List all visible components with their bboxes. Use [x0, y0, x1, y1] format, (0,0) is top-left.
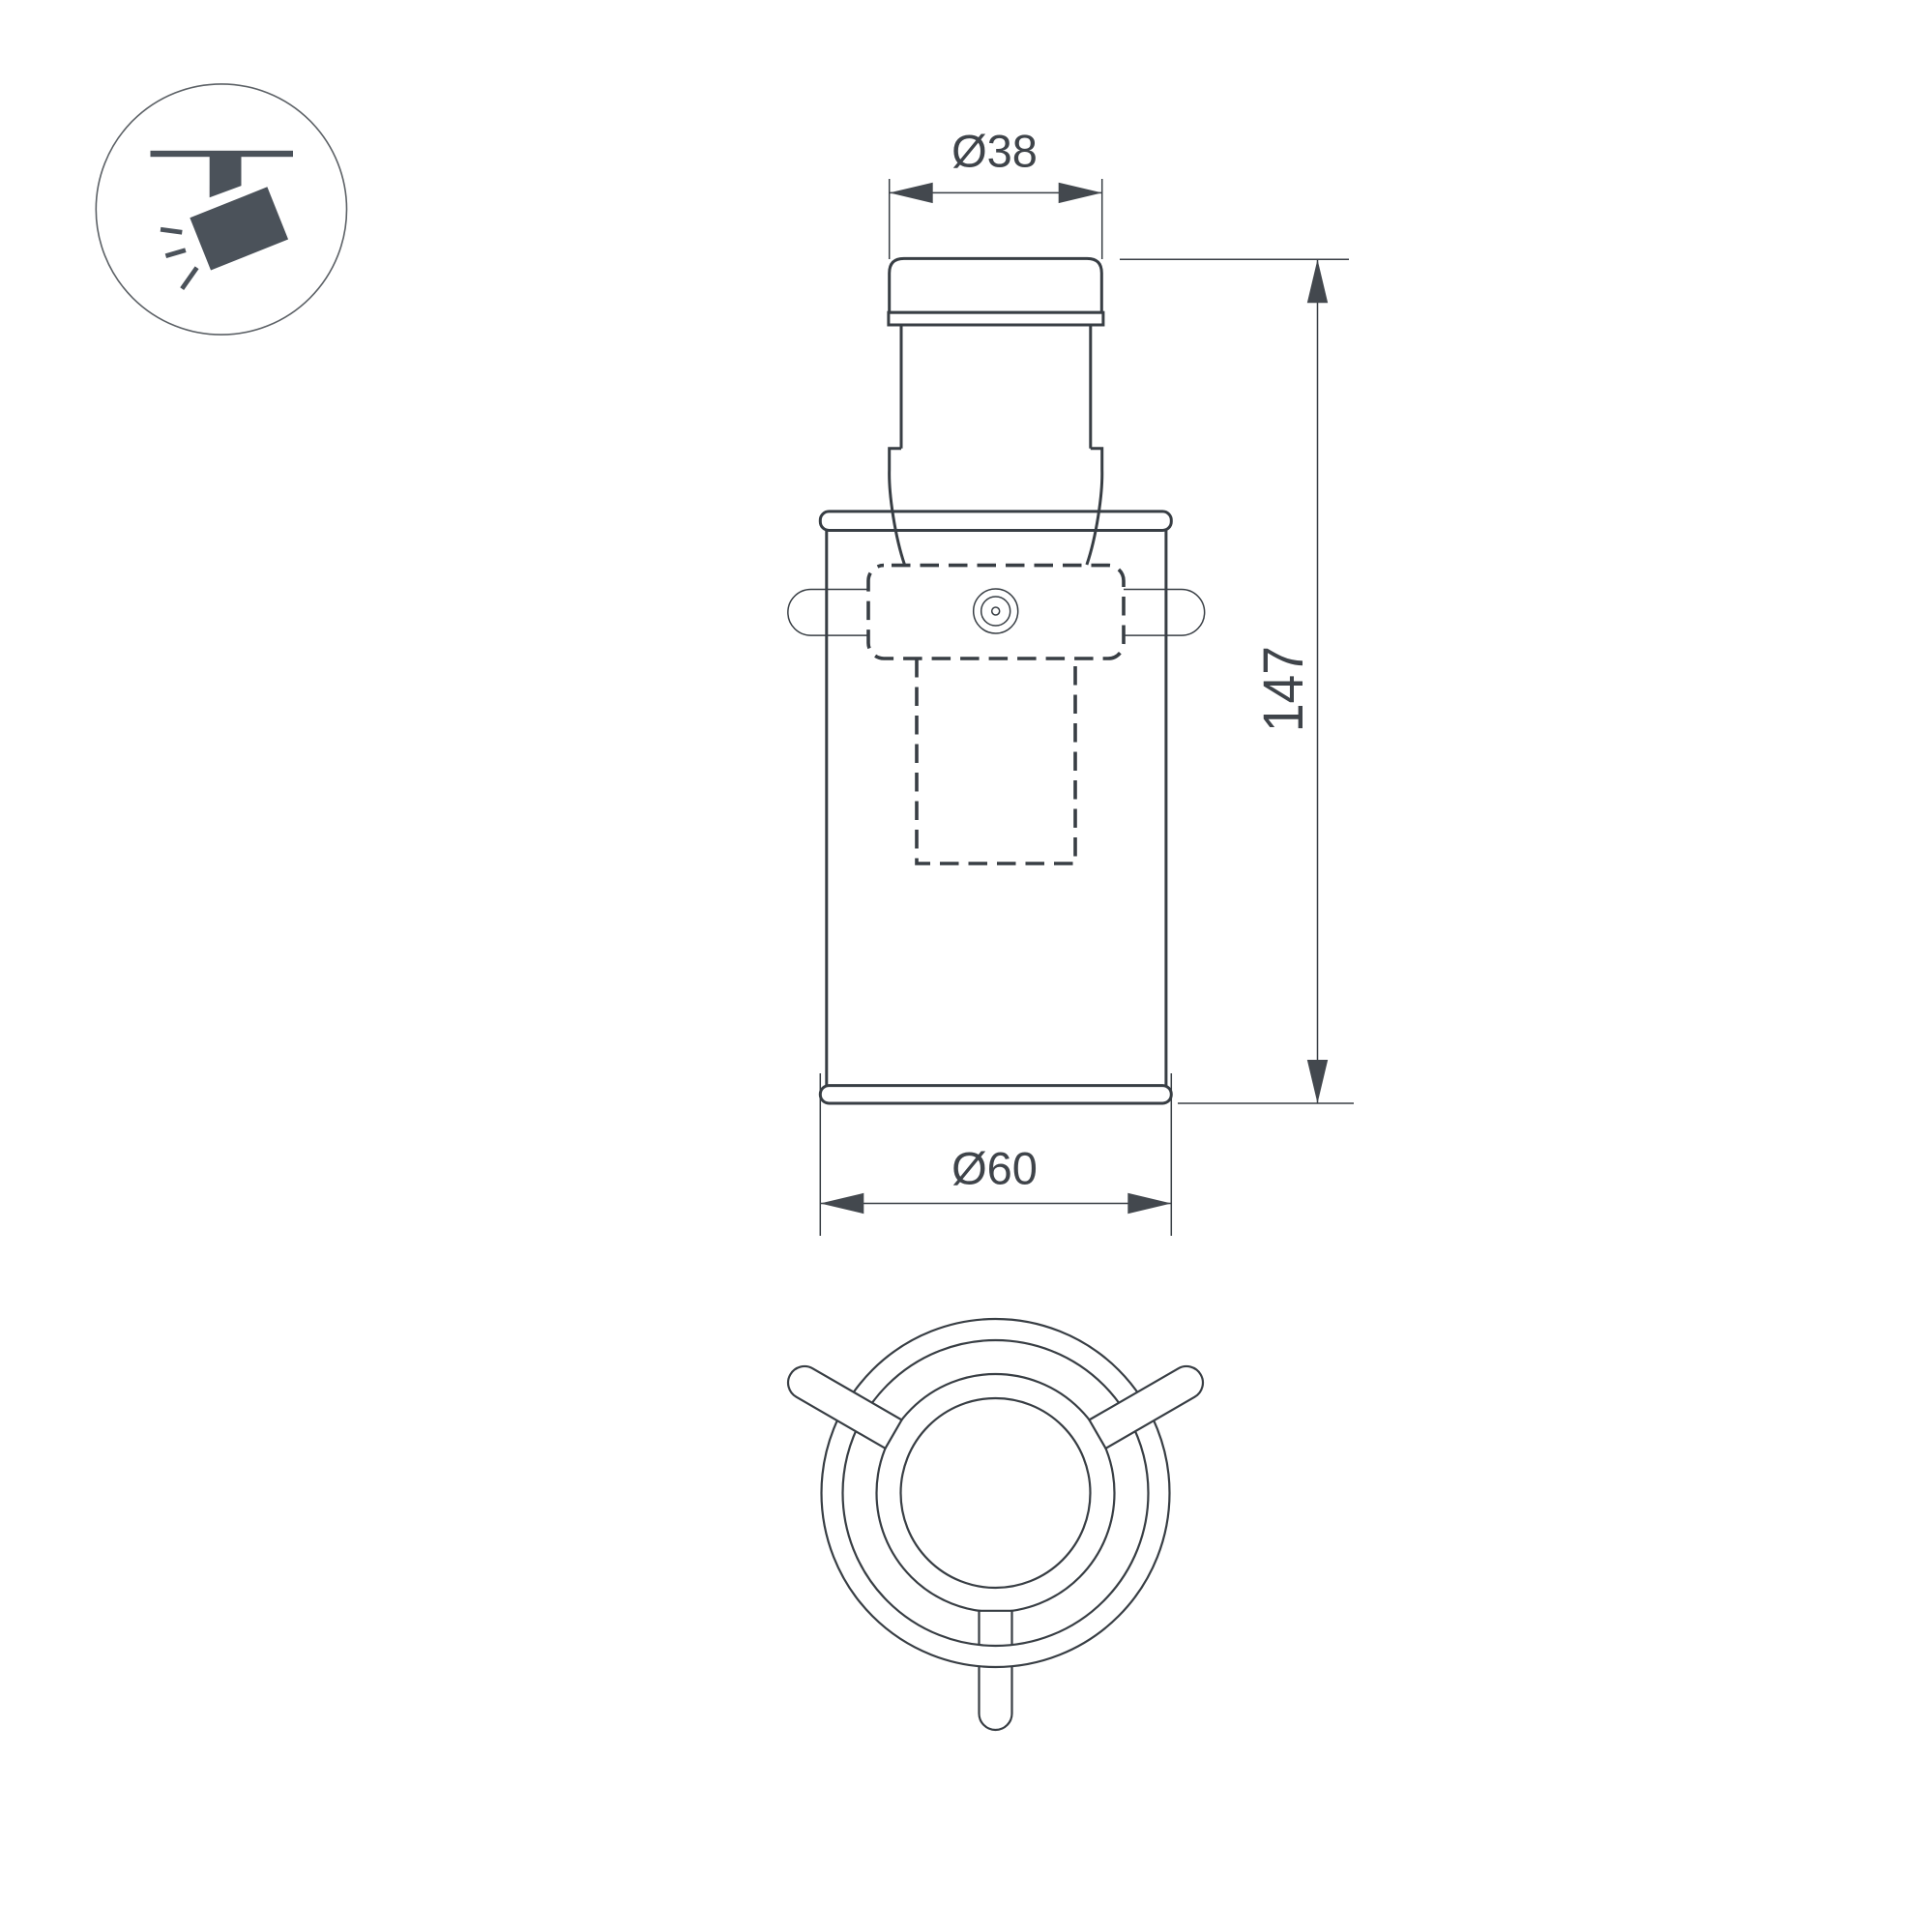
svg-text:Ø60: Ø60: [951, 1143, 1038, 1194]
svg-text:147: 147: [1252, 646, 1315, 732]
svg-text:Ø38: Ø38: [951, 126, 1038, 177]
